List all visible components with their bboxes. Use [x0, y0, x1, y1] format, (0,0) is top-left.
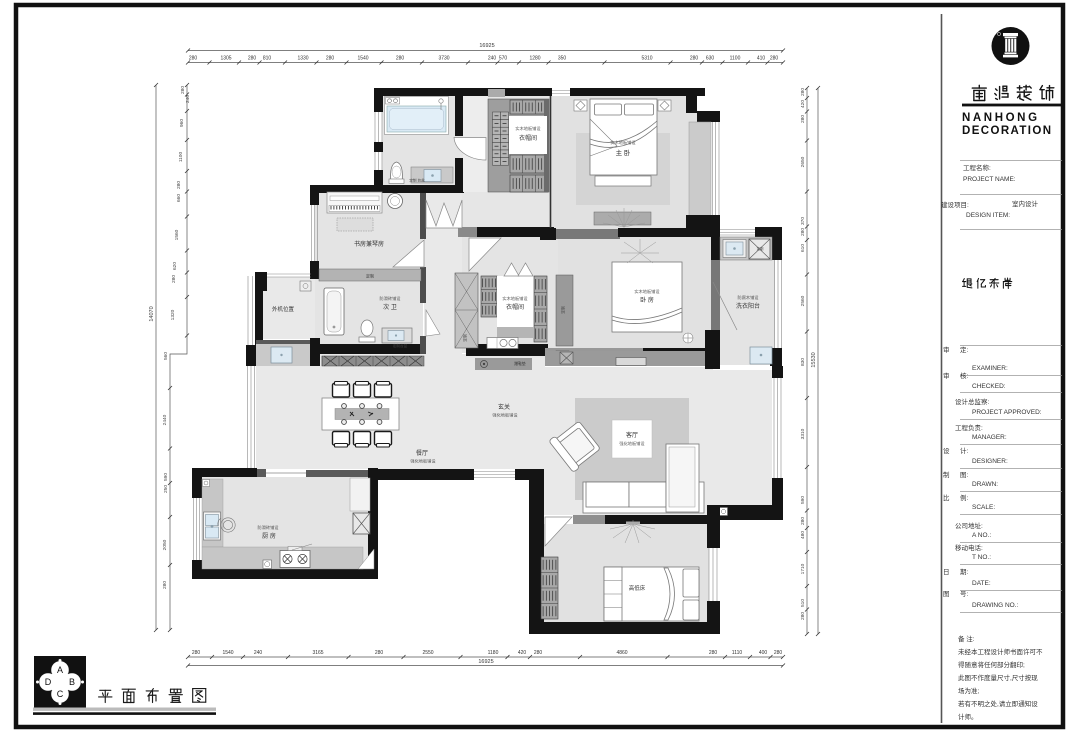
svg-text:计师。: 计师。 — [958, 712, 978, 721]
svg-text:350: 350 — [558, 56, 567, 62]
svg-text:SCALE:: SCALE: — [972, 504, 995, 511]
svg-text:室内设计: 室内设计 — [1012, 199, 1039, 208]
svg-text:3730: 3730 — [438, 56, 449, 62]
svg-text:630: 630 — [706, 56, 715, 62]
svg-text:定制: 定制 — [366, 273, 374, 279]
svg-text:DRAWN:: DRAWN: — [972, 481, 998, 488]
svg-text:卧 房: 卧 房 — [640, 296, 654, 304]
svg-text:280: 280 — [800, 517, 806, 525]
svg-text:280: 280 — [770, 56, 779, 62]
svg-text:工程名称:: 工程名称: — [963, 163, 991, 172]
svg-text:810: 810 — [263, 56, 272, 62]
svg-text:280: 280 — [171, 275, 177, 283]
svg-text:号:: 号: — [960, 590, 969, 598]
svg-text:480: 480 — [800, 531, 806, 539]
svg-text:书房兼琴房: 书房兼琴房 — [354, 240, 384, 248]
svg-text:DRAWING NO.:: DRAWING NO.: — [972, 602, 1019, 609]
svg-text:4860: 4860 — [616, 650, 627, 656]
svg-text:280: 280 — [192, 650, 201, 656]
svg-text:280: 280 — [774, 650, 783, 656]
svg-text:15530: 15530 — [811, 352, 817, 367]
svg-text:280: 280 — [396, 56, 405, 62]
svg-text:280: 280 — [709, 650, 718, 656]
svg-text:防滑砖铺设: 防滑砖铺设 — [258, 524, 280, 531]
svg-text:设计总监察:: 设计总监察: — [955, 397, 990, 406]
svg-text:PROJECT APPROVED:: PROJECT APPROVED: — [972, 409, 1042, 416]
svg-text:280: 280 — [690, 56, 699, 62]
svg-text:250: 250 — [163, 485, 169, 493]
svg-text:1100: 1100 — [178, 152, 184, 163]
svg-text:DESIGNER:: DESIGNER: — [972, 458, 1008, 465]
svg-text:C: C — [57, 689, 64, 699]
svg-text:PROJECT NAME:: PROJECT NAME: — [963, 176, 1016, 183]
svg-text:280: 280 — [189, 56, 198, 62]
svg-text:次 卫: 次 卫 — [383, 303, 397, 311]
svg-text:衣帽间: 衣帽间 — [506, 303, 524, 311]
svg-text:1320: 1320 — [170, 309, 176, 320]
svg-text:420: 420 — [518, 650, 527, 656]
svg-text:280: 280 — [326, 56, 335, 62]
svg-text:防滑砖铺设: 防滑砖铺设 — [380, 295, 402, 302]
svg-text:1100: 1100 — [730, 56, 741, 62]
svg-text:实木地板铺设: 实木地板铺设 — [515, 125, 541, 132]
svg-text:定制 台盆: 定制 台盆 — [409, 178, 425, 183]
svg-text:蹭鞋垫: 蹭鞋垫 — [514, 361, 526, 366]
svg-text:未经本工程设计师书面许可不: 未经本工程设计师书面许可不 — [958, 647, 1043, 656]
svg-text:280: 280 — [800, 228, 806, 236]
svg-text:280: 280 — [800, 115, 806, 123]
svg-text:定制: 定制 — [463, 334, 468, 342]
svg-text:建设项目:: 建设项目: — [941, 200, 969, 209]
svg-text:240: 240 — [488, 56, 497, 62]
svg-text:强化地板铺设: 强化地板铺设 — [410, 458, 436, 465]
svg-text:570: 570 — [499, 56, 508, 62]
svg-text:主 卧: 主 卧 — [616, 148, 631, 157]
svg-text:D: D — [45, 677, 52, 687]
svg-text:1540: 1540 — [357, 56, 368, 62]
svg-text:620: 620 — [172, 262, 178, 270]
svg-text:410: 410 — [757, 56, 766, 62]
svg-text:1305: 1305 — [220, 56, 231, 62]
svg-text:客厅: 客厅 — [626, 431, 638, 439]
svg-text:2560: 2560 — [800, 295, 806, 306]
svg-text:实木地板铺设: 实木地板铺设 — [634, 288, 660, 295]
svg-text:洗衣阳台: 洗衣阳台 — [736, 302, 760, 310]
svg-text:衣帽间: 衣帽间 — [519, 134, 537, 142]
svg-text:外机位置: 外机位置 — [272, 305, 295, 313]
svg-text:280: 280 — [375, 650, 384, 656]
svg-text:280: 280 — [534, 650, 543, 656]
svg-text:960: 960 — [179, 119, 185, 127]
svg-text:得随意将任何部分翻印;: 得随意将任何部分翻印; — [958, 660, 1025, 669]
svg-text:1280: 1280 — [529, 56, 540, 62]
svg-text:T NO.:: T NO.: — [972, 554, 991, 561]
svg-text:5310: 5310 — [641, 56, 652, 62]
svg-text:玄关: 玄关 — [498, 403, 510, 411]
svg-text:280: 280 — [162, 581, 168, 589]
svg-text:DECORATION: DECORATION — [962, 125, 1052, 137]
svg-text:定制台盆: 定制台盆 — [393, 343, 408, 348]
svg-text:制: 制 — [943, 470, 950, 479]
svg-text:此图不作度量尺寸,尺寸按现: 此图不作度量尺寸,尺寸按现 — [958, 673, 1038, 682]
svg-text:设: 设 — [943, 446, 950, 455]
svg-text:510: 510 — [800, 599, 806, 607]
svg-text:1180: 1180 — [488, 650, 499, 656]
svg-text:日: 日 — [943, 568, 950, 576]
svg-text:图:: 图: — [960, 471, 969, 479]
svg-text:审: 审 — [943, 371, 950, 380]
svg-text:场为准;: 场为准; — [958, 686, 980, 695]
svg-text:计:: 计: — [960, 446, 969, 455]
svg-text:280: 280 — [800, 612, 806, 620]
svg-text:实木地板铺设: 实木地板铺设 — [610, 139, 636, 146]
svg-text:实木地板铺设: 实木地板铺设 — [502, 295, 528, 302]
svg-text:2440: 2440 — [162, 414, 168, 425]
svg-text:560: 560 — [163, 352, 169, 360]
svg-text:移动电话:: 移动电话: — [955, 543, 983, 552]
svg-text:3165: 3165 — [312, 650, 323, 656]
svg-text:1560: 1560 — [174, 229, 180, 240]
svg-text:2550: 2550 — [422, 650, 433, 656]
svg-text:DESIGN ITEM:: DESIGN ITEM: — [966, 212, 1010, 219]
svg-text:280: 280 — [248, 56, 257, 62]
svg-text:16925: 16925 — [478, 659, 493, 665]
svg-text:370: 370 — [800, 217, 806, 225]
svg-text:280: 280 — [176, 181, 182, 189]
svg-text:1110: 1110 — [732, 650, 743, 656]
svg-text:3310: 3310 — [800, 428, 806, 439]
svg-text:830: 830 — [800, 358, 806, 366]
svg-text:定制: 定制 — [561, 306, 566, 314]
svg-text:期:: 期: — [960, 568, 969, 576]
svg-text:DATE:: DATE: — [972, 580, 991, 587]
svg-text:防腐木铺设: 防腐木铺设 — [738, 294, 760, 301]
svg-text:A NO.:: A NO.: — [972, 532, 991, 539]
svg-text:公司地址:: 公司地址: — [955, 521, 983, 530]
svg-text:610: 610 — [800, 244, 806, 252]
svg-text:定:: 定: — [960, 345, 969, 354]
svg-text:审: 审 — [943, 345, 950, 354]
svg-text:强化地板铺设: 强化地板铺设 — [492, 412, 518, 419]
svg-text:590: 590 — [163, 473, 169, 481]
svg-text:高低床: 高低床 — [629, 584, 646, 592]
svg-text:B: B — [69, 677, 75, 687]
svg-text:若有不明之处,请立即通知设: 若有不明之处,请立即通知设 — [958, 699, 1038, 708]
svg-text:强化地板铺设: 强化地板铺设 — [619, 440, 645, 447]
svg-text:240: 240 — [254, 650, 263, 656]
svg-text:2650: 2650 — [800, 156, 806, 167]
svg-text:A: A — [57, 665, 63, 675]
svg-text:EXAMINER:: EXAMINER: — [972, 365, 1008, 372]
svg-text:14070: 14070 — [149, 306, 155, 321]
svg-text:工程负责:: 工程负责: — [955, 423, 983, 432]
svg-text:图: 图 — [943, 590, 950, 598]
svg-text:400: 400 — [759, 650, 768, 656]
svg-text:定制: 定制 — [757, 246, 764, 251]
svg-text:660: 660 — [176, 194, 182, 202]
svg-text:2050: 2050 — [162, 539, 168, 550]
svg-text:1330: 1330 — [297, 56, 308, 62]
svg-text:CHECKED:: CHECKED: — [972, 383, 1006, 390]
svg-text:比: 比 — [943, 493, 950, 502]
svg-text:例:: 例: — [960, 493, 969, 502]
svg-text:590: 590 — [800, 496, 806, 504]
svg-text:420: 420 — [800, 100, 806, 108]
svg-text:16925: 16925 — [479, 43, 494, 49]
svg-text:280: 280 — [800, 88, 806, 96]
svg-text:1540: 1540 — [222, 650, 233, 656]
svg-text:NANHONG: NANHONG — [962, 112, 1040, 124]
svg-text:MANAGER:: MANAGER: — [972, 434, 1007, 441]
svg-text:1710: 1710 — [800, 563, 806, 574]
svg-text:核:: 核: — [960, 371, 969, 380]
svg-text:备 注:: 备 注: — [958, 634, 975, 643]
svg-text:厨 房: 厨 房 — [262, 532, 276, 540]
svg-text:餐厅: 餐厅 — [416, 449, 428, 457]
